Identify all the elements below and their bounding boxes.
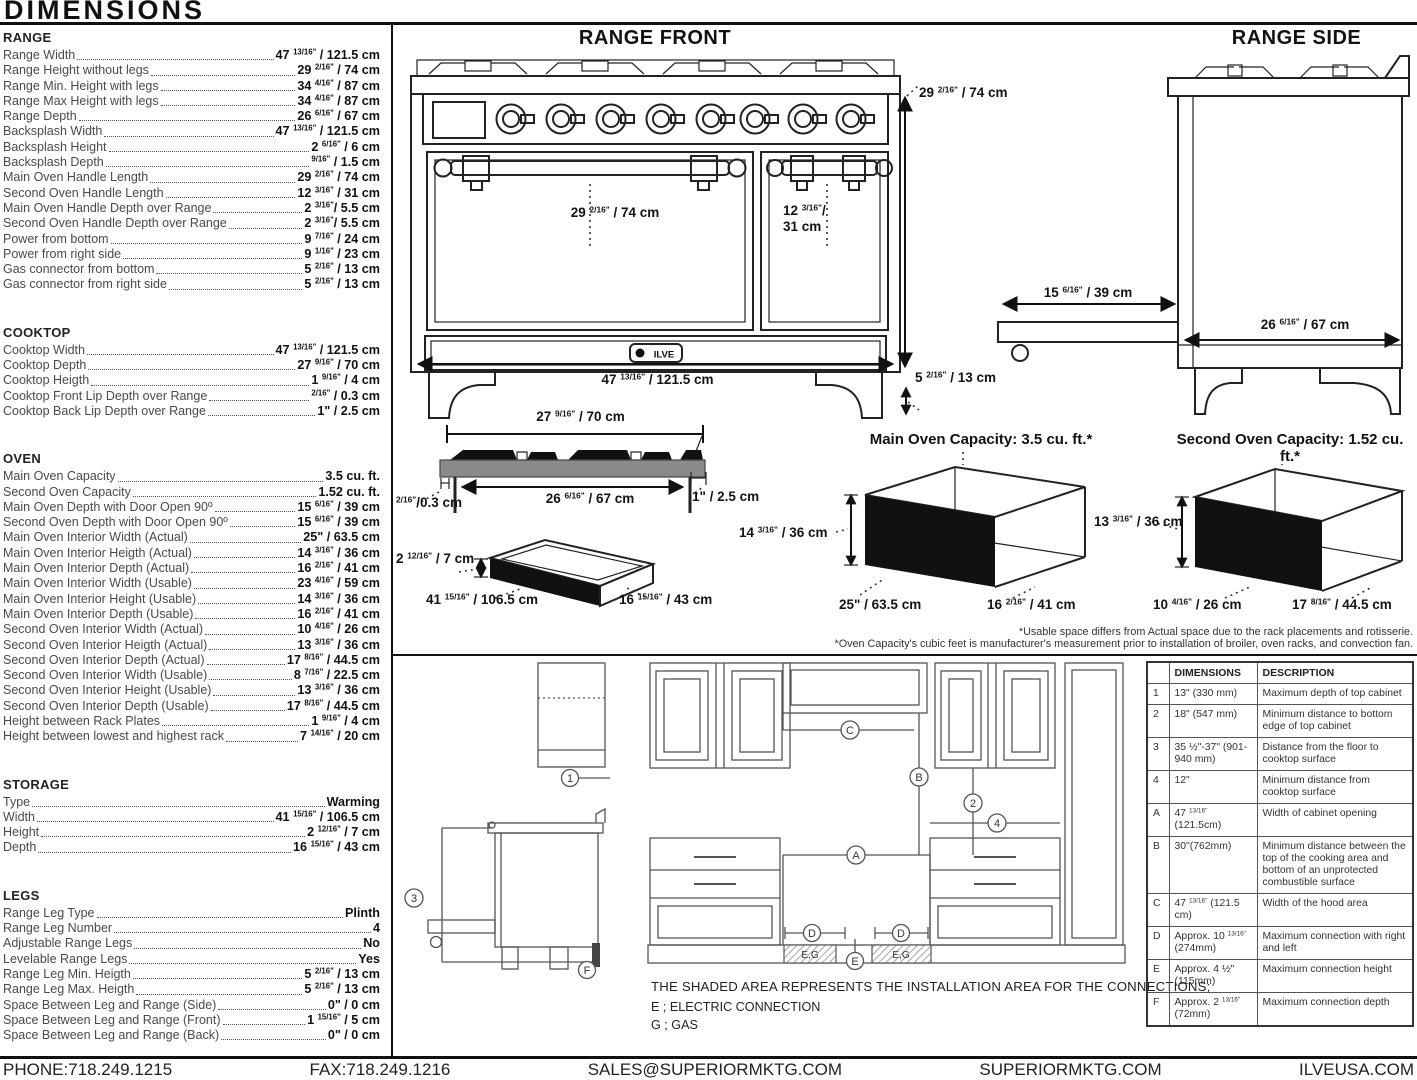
spec-row: Main Oven Depth with Door Open 90º15 6/1…: [3, 500, 380, 515]
plinth-leg: [1320, 368, 1400, 414]
spec-value: 2 12/16" / 7 cm: [307, 825, 380, 839]
second-oven-width-dim: 10 4/16" / 26 cm: [1153, 597, 1242, 612]
spec-label: Main Oven Handle Length: [3, 170, 148, 184]
spec-section-oven: OVENMain Oven Capacity3.5 cu. ft.Second …: [3, 451, 380, 744]
spec-value: 23 4/16" / 59 cm: [297, 576, 380, 590]
svg-text:A: A: [852, 850, 860, 862]
spec-value: 34 4/16" / 87 cm: [297, 79, 380, 93]
dotted-leader: [134, 948, 361, 949]
dotted-leader: [91, 385, 309, 386]
svg-text:1: 1: [567, 773, 573, 785]
spec-label: Main Oven Interior Width (Usable): [3, 576, 192, 590]
spec-value: 29 2/16" / 74 cm: [297, 170, 380, 184]
caster-wheel-icon: [431, 937, 442, 948]
spec-row: Levelable Range LegsYes: [3, 952, 380, 967]
spec-value: Warming: [327, 795, 380, 809]
spec-label: Range Leg Number: [3, 921, 112, 935]
front-main-handle-dim: 29 2/16" / 74 cm: [545, 205, 685, 220]
main-oven-door: [427, 152, 753, 330]
spec-label: Height between lowest and highest rack: [3, 729, 224, 743]
connection-label: E,G: [801, 950, 818, 961]
spec-row: Backsplash Height2 6/16" / 6 cm: [3, 140, 380, 155]
spec-value: 16 15/16" / 43 cm: [293, 840, 380, 854]
marker-e: E: [847, 953, 864, 970]
spec-row: Main Oven Interior Depth (Actual)16 2/16…: [3, 561, 380, 576]
spec-section-title: STORAGE: [3, 777, 380, 792]
spec-value: 5 2/16" / 13 cm: [304, 277, 380, 291]
spec-row: Range Leg Min. Heigth5 2/16" / 13 cm: [3, 967, 380, 982]
dotted-leader: [41, 836, 305, 837]
marker-c: C: [841, 721, 859, 739]
dotted-leader: [111, 243, 303, 244]
spec-section-cooktop: COOKTOPCooktop Width47 13/16" / 121.5 cm…: [3, 325, 380, 419]
marker-f: F: [579, 962, 596, 979]
dotted-leader: [208, 415, 315, 416]
dotted-leader: [211, 710, 285, 711]
dotted-leader: [215, 511, 296, 512]
spec-value: 15 6/16" / 39 cm: [297, 500, 380, 514]
spec-row: Main Oven Handle Depth over Range2 3/16"…: [3, 201, 380, 216]
marker-d: D: [804, 925, 821, 942]
spec-row: Range Max Height with legs34 4/16" / 87 …: [3, 94, 380, 109]
cooktop-width-dim: 27 9/16" / 70 cm: [488, 409, 673, 424]
spec-row: Cooktop Depth27 9/16" / 70 cm: [3, 358, 380, 373]
dotted-leader: [194, 557, 295, 558]
spec-row: Second Oven Interior Heigth (Actual)13 3…: [3, 638, 380, 653]
dotted-leader: [191, 572, 295, 573]
svg-text:2: 2: [970, 798, 976, 810]
dotted-leader: [161, 105, 296, 106]
spec-section-legs: LEGSRange Leg TypePlinthRange Leg Number…: [3, 888, 380, 1044]
spec-value: 1 15/16" / 5 cm: [307, 1013, 380, 1027]
oven-cavity-face: [865, 495, 995, 587]
dotted-leader: [209, 649, 295, 650]
spec-value: 2 3/16"/ 5.5 cm: [304, 201, 380, 215]
brand-logo: ILVE: [654, 350, 674, 361]
front-lip-ticks: [441, 478, 449, 489]
plinth-leg: [1195, 368, 1242, 414]
spec-row: Main Oven Capacity3.5 cu. ft.: [3, 469, 380, 484]
table-ref-cell: A: [1147, 804, 1169, 837]
table-row: FApprox. 2 13/16" (72mm)Maximum connecti…: [1147, 993, 1413, 1027]
spec-row: Second Oven Interior Depth (Actual)17 8/…: [3, 653, 380, 668]
front-second-handle-dim: 12 3/16"/ 31 cm: [783, 203, 873, 235]
spec-section-title: COOKTOP: [3, 325, 380, 340]
dotted-leader: [133, 496, 317, 497]
spec-row: Second Oven Interior Height (Usable)13 3…: [3, 683, 380, 698]
spec-value: 26 6/16" / 67 cm: [297, 109, 380, 123]
table-header-dimensions: DIMENSIONS: [1169, 662, 1257, 684]
spec-row: Second Oven Interior Width (Usable)8 7/1…: [3, 668, 380, 683]
table-ref-cell: 2: [1147, 705, 1169, 738]
spec-label: Power from right side: [3, 247, 121, 261]
spec-label: Main Oven Interior Depth (Usable): [3, 607, 193, 621]
main-oven-capacity-drawing: [835, 450, 1125, 620]
spec-label: Second Oven Interior Width (Actual): [3, 622, 203, 636]
dotted-leader: [195, 618, 295, 619]
dotted-leader: [169, 289, 302, 290]
spec-value: 0" / 0 cm: [328, 1028, 380, 1042]
tall-cabinet: [1065, 663, 1123, 945]
spec-value: 13 3/16" / 36 cm: [297, 638, 380, 652]
storage-depth-dim: 16 15/16" / 43 cm: [619, 592, 712, 607]
spec-value: 17 8/16" / 44.5 cm: [287, 699, 380, 713]
spec-row: Main Oven Interior Heigth (Actual)14 3/1…: [3, 546, 380, 561]
dotted-leader: [118, 481, 324, 482]
burners-icon: [450, 450, 703, 460]
table-description-cell: Maximum connection with right and left: [1257, 927, 1413, 960]
table-description-cell: Minimum distance from cooktop surface: [1257, 771, 1413, 804]
front-leg-height-dim: 5 2/16" / 13 cm: [915, 370, 996, 385]
spec-label: Backsplash Depth: [3, 155, 104, 169]
spec-row: Height between Rack Plates1 9/16" / 4 cm: [3, 714, 380, 729]
second-oven-door: [761, 152, 888, 330]
spec-value: 5 2/16" / 13 cm: [304, 262, 380, 276]
footer-site: SUPERIORMKTG.COM: [979, 1060, 1161, 1080]
spec-label: Second Oven Interior Height (Usable): [3, 683, 211, 697]
spec-label: Range Width: [3, 48, 75, 62]
table-ref-cell: 3: [1147, 738, 1169, 771]
side-view-title: RANGE SIDE: [1180, 27, 1413, 50]
dotted-leader: [129, 963, 356, 964]
front-height-dim: 29 2/16" / 74 cm: [919, 85, 1008, 100]
spec-row: Width41 15/16" / 106.5 cm: [3, 810, 380, 825]
spec-value: 47 13/16" / 121.5 cm: [276, 48, 380, 62]
table-row: DApprox. 10 13/16" (274mm)Maximum connec…: [1147, 927, 1413, 960]
table-row: 335 ½"-37" (901-940 mm)Distance from the…: [1147, 738, 1413, 771]
svg-text:4: 4: [994, 818, 1000, 830]
front-width-dim: 47 13/16" / 121.5 cm: [555, 372, 760, 387]
spec-value: 47 13/16" / 121.5 cm: [276, 343, 380, 357]
install-note: THE SHADED AREA REPRESENTS THE INSTALLAT…: [651, 979, 1210, 994]
spec-label: Power from bottom: [3, 232, 109, 246]
dotted-leader: [136, 994, 302, 995]
spec-row: Range Leg TypePlinth: [3, 906, 380, 921]
spec-row: Power from bottom9 7/16" / 24 cm: [3, 232, 380, 247]
spec-label: Height between Rack Plates: [3, 714, 160, 728]
spec-label: Space Between Leg and Range (Back): [3, 1028, 219, 1042]
dotted-leader: [229, 228, 303, 229]
spec-row: Second Oven Interior Depth (Usable)17 8/…: [3, 699, 380, 714]
spec-label: Second Oven Interior Width (Usable): [3, 668, 207, 682]
table-description-cell: Minimum distance between the top of the …: [1257, 837, 1413, 894]
ilve-badge: ILVE: [630, 344, 682, 362]
spec-label: Range Max Height with legs: [3, 94, 159, 108]
spec-value: 0" / 0 cm: [328, 998, 380, 1012]
spec-value: 9/16" / 1.5 cm: [311, 155, 380, 169]
footer-phone: PHONE:718.249.1215: [3, 1060, 172, 1080]
spec-row: Space Between Leg and Range (Back)0" / 0…: [3, 1028, 380, 1043]
spec-row: Height2 12/16" / 7 cm: [3, 825, 380, 840]
spec-section-title: OVEN: [3, 451, 380, 466]
spec-label: Second Oven Interior Depth (Usable): [3, 699, 209, 713]
marker-b: B: [910, 768, 928, 786]
spec-row: Range Leg Max. Heigth5 2/16" / 13 cm: [3, 982, 380, 997]
table-ref-cell: D: [1147, 927, 1169, 960]
installation-diagram: 1 3 F C B 2 4: [398, 658, 1143, 980]
dotted-leader: [37, 821, 274, 822]
spec-label: Range Height without legs: [3, 63, 149, 77]
spec-row: Main Oven Interior Depth (Usable)16 2/16…: [3, 607, 380, 622]
footer-rule: [0, 1056, 1417, 1059]
table-ref-cell: 1: [1147, 684, 1169, 705]
spec-section-storage: STORAGETypeWarmingWidth41 15/16" / 106.5…: [3, 777, 380, 856]
legend-electric: E ; ELECTRIC CONNECTION: [651, 1000, 820, 1014]
footer-site2: ILVEUSA.COM: [1299, 1060, 1414, 1080]
marker-1: 1: [562, 770, 579, 787]
spec-label: Second Oven Handle Depth over Range: [3, 216, 227, 230]
spec-row: TypeWarming: [3, 795, 380, 810]
table-description-cell: Minimum distance to bottom edge of top c…: [1257, 705, 1413, 738]
top-rule: [0, 22, 1417, 25]
spec-row: Backsplash Width47 13/16" / 121.5 cm: [3, 124, 380, 139]
svg-text:E: E: [851, 956, 858, 968]
front-view-title: RANGE FRONT: [455, 27, 855, 50]
install-dimensions-table: DIMENSIONS DESCRIPTION 113" (330 mm)Maxi…: [1146, 661, 1414, 1027]
table-dimensions-cell: 47 13/16"(121.5cm): [1169, 804, 1257, 837]
spec-row: Space Between Leg and Range (Front)1 15/…: [3, 1013, 380, 1028]
spec-section-title: RANGE: [3, 30, 380, 45]
cooktop-front-lip-dim: 2/16"/0.3 cm: [396, 495, 462, 510]
dotted-leader: [156, 273, 302, 274]
spec-row: Second Oven Capacity1.52 cu. ft.: [3, 485, 380, 500]
table-row: C47 13/16" (121.5 cm)Width of the hood a…: [1147, 894, 1413, 927]
table-dimensions-cell: 13" (330 mm): [1169, 684, 1257, 705]
spec-row: Second Oven Depth with Door Open 90º15 6…: [3, 515, 380, 530]
table-row: 412"Minimum distance from cooktop surfac…: [1147, 771, 1413, 804]
spec-row: Main Oven Interior Width (Usable)23 4/16…: [3, 576, 380, 591]
spec-value: 2/16" / 0.3 cm: [311, 389, 380, 403]
table-row: A47 13/16"(121.5cm)Width of cabinet open…: [1147, 804, 1413, 837]
dotted-leader: [209, 400, 309, 401]
table-dimensions-cell: 18" (547 mm): [1169, 705, 1257, 738]
second-oven-handle: [767, 156, 892, 190]
oven-cavity-face: [1195, 497, 1322, 591]
dotted-leader: [109, 151, 310, 152]
dotted-leader: [77, 59, 273, 60]
table-dimensions-cell: 47 13/16" (121.5 cm): [1169, 894, 1257, 927]
vertical-divider: [391, 23, 393, 1056]
dotted-leader: [209, 679, 292, 680]
table-ref-cell: F: [1147, 993, 1169, 1027]
footnote-oven-capacity: *Oven Capacity's cubic feet is manufactu…: [813, 639, 1413, 651]
spec-label: Second Oven Handle Length: [3, 186, 164, 200]
spec-row: Second Oven Handle Length12 3/16" / 31 c…: [3, 186, 380, 201]
dotted-leader: [133, 978, 303, 979]
middle-divider: [391, 654, 1417, 656]
spec-row: Second Oven Handle Depth over Range2 3/1…: [3, 216, 380, 231]
cooktop-slab: [440, 460, 705, 477]
dotted-leader: [205, 634, 295, 635]
table-header-ref: [1147, 662, 1169, 684]
spec-label: Cooktop Depth: [3, 358, 86, 372]
base-cabinet-left: [650, 838, 780, 945]
legend-gas: G ; GAS: [651, 1018, 698, 1032]
connection-label: E,G: [892, 950, 909, 961]
svg-text:3: 3: [411, 893, 417, 905]
table-dimensions-cell: Approx. 4 ½" (115mm): [1169, 960, 1257, 993]
spec-row: Cooktop Width47 13/16" / 121.5 cm: [3, 343, 380, 358]
backsplash: [1385, 56, 1409, 78]
spec-label: Backsplash Width: [3, 124, 102, 138]
spec-value: 47 13/16" / 121.5 cm: [276, 124, 380, 138]
table-description-cell: Width of cabinet opening: [1257, 804, 1413, 837]
table-description-cell: Maximum depth of top cabinet: [1257, 684, 1413, 705]
table-ref-cell: E: [1147, 960, 1169, 993]
spec-row: Range Width47 13/16" / 121.5 cm: [3, 48, 380, 63]
spec-row: Backsplash Depth9/16" / 1.5 cm: [3, 155, 380, 170]
spec-value: No: [363, 936, 380, 950]
cooktop-inner-width-dim: 26 6/16" / 67 cm: [505, 491, 675, 506]
spec-label: Second Oven Interior Heigth (Actual): [3, 638, 207, 652]
table-row: 218" (547 mm)Minimum distance to bottom …: [1147, 705, 1413, 738]
dotted-leader: [221, 1039, 326, 1040]
spec-row: Range Height without legs29 2/16" / 74 c…: [3, 63, 380, 78]
spec-label: Range Leg Type: [3, 906, 95, 920]
spec-label: Space Between Leg and Range (Side): [3, 998, 216, 1012]
spec-value: 3.5 cu. ft.: [325, 469, 380, 483]
table-description-cell: Maximum connection depth: [1257, 993, 1413, 1027]
footnotes: *Usable space differs from Actual space …: [813, 627, 1413, 651]
spec-value: 10 4/16" / 26 cm: [297, 622, 380, 636]
spec-row: Range Min. Height with legs34 4/16" / 87…: [3, 79, 380, 94]
spec-label: Backsplash Height: [3, 140, 107, 154]
dotted-leader: [79, 120, 296, 121]
spec-label: Levelable Range Legs: [3, 952, 127, 966]
dotted-leader: [114, 932, 371, 933]
spec-label: Second Oven Capacity: [3, 485, 131, 499]
spec-row: Cooktop Back Lip Depth over Range1" / 2.…: [3, 404, 380, 419]
spec-row: Gas connector from right side5 2/16" / 1…: [3, 277, 380, 292]
dotted-leader: [161, 90, 296, 91]
dotted-leader: [32, 806, 324, 807]
open-door-sketch: [428, 920, 495, 933]
second-oven-depth-dim: 17 8/16" / 44.5 cm: [1292, 597, 1392, 612]
spec-value: 12 3/16" / 31 cm: [297, 186, 380, 200]
display-panel: [433, 102, 485, 138]
svg-text:F: F: [584, 965, 591, 977]
spec-sheet-page: DIMENSIONS RANGERange Width47 13/16" / 1…: [0, 0, 1417, 1080]
spec-row: Range Depth26 6/16" / 67 cm: [3, 109, 380, 124]
dotted-leader: [162, 725, 309, 726]
spec-label: Second Oven Interior Depth (Actual): [3, 653, 205, 667]
spec-value: 25" / 63.5 cm: [303, 530, 380, 544]
dotted-leader: [166, 197, 296, 198]
marker-a: A: [847, 846, 865, 864]
dotted-leader: [213, 212, 302, 213]
dotted-leader: [87, 354, 274, 355]
dotted-leader: [198, 603, 295, 604]
marker-4: 4: [988, 814, 1006, 832]
dotted-leader: [123, 258, 302, 259]
cooktop-back-lip-dim: 1" / 2.5 cm: [692, 489, 759, 504]
dotted-leader: [223, 1024, 306, 1025]
spec-value: 27 9/16" / 70 cm: [297, 358, 380, 372]
spec-value: 9 1/16" / 23 cm: [304, 247, 380, 261]
marker-2: 2: [964, 794, 982, 812]
spec-value: 1" / 2.5 cm: [317, 404, 380, 418]
table-dimensions-cell: Approx. 2 13/16" (72mm): [1169, 993, 1257, 1027]
spec-row: Space Between Leg and Range (Side)0" / 0…: [3, 998, 380, 1013]
dotted-leader: [218, 1009, 325, 1010]
spec-section-range: RANGERange Width47 13/16" / 121.5 cmRang…: [3, 30, 380, 293]
spec-row: Main Oven Handle Length29 2/16" / 74 cm: [3, 170, 380, 185]
spec-value: 13 3/16" / 36 cm: [297, 683, 380, 697]
range-side-drawing: [990, 52, 1417, 424]
svg-text:C: C: [846, 725, 854, 737]
burner-grates-icon: [429, 61, 878, 74]
spec-row: Gas connector from bottom5 2/16" / 13 cm: [3, 262, 380, 277]
dotted-leader: [213, 695, 295, 696]
dotted-leader: [88, 369, 295, 370]
dotted-leader: [207, 664, 285, 665]
spec-row: Second Oven Interior Width (Actual)10 4/…: [3, 622, 380, 637]
spec-label: Cooktop Heigth: [3, 373, 89, 387]
table-description-cell: Maximum connection height: [1257, 960, 1413, 993]
spec-value: 4: [373, 921, 380, 935]
svg-text:D: D: [897, 928, 905, 940]
spec-row: Main Oven Interior Height (Usable)14 3/1…: [3, 592, 380, 607]
spec-value: 34 4/16" / 87 cm: [297, 94, 380, 108]
spec-label: Depth: [3, 840, 36, 854]
side-door-open-dim: 15 6/16" / 39 cm: [1008, 285, 1168, 300]
storage-drawer-drawing: [395, 528, 815, 628]
footer-email: SALES@SUPERIORMKTG.COM: [588, 1060, 842, 1080]
spec-value: 7 14/16" / 20 cm: [300, 729, 380, 743]
open-oven-door: [998, 322, 1178, 342]
spec-value: 9 7/16" / 24 cm: [304, 232, 380, 246]
main-oven-depth-dim: 16 2/16" / 41 cm: [987, 597, 1076, 612]
table-ref-cell: B: [1147, 837, 1169, 894]
spec-label: Main Oven Interior Heigth (Actual): [3, 546, 192, 560]
base-cabinet-right: [930, 838, 1060, 945]
spec-label: Main Oven Handle Depth over Range: [3, 201, 211, 215]
dotted-leader: [151, 75, 295, 76]
storage-height-dim: 2 12/16" / 7 cm: [396, 551, 474, 566]
footer-fax: FAX:718.249.1216: [310, 1060, 451, 1080]
main-oven-width-dim: 25" / 63.5 cm: [839, 597, 921, 612]
spec-label: Cooktop Width: [3, 343, 85, 357]
spec-value: Yes: [358, 952, 380, 966]
spec-row: Range Leg Number4: [3, 921, 380, 936]
table-ref-cell: C: [1147, 894, 1169, 927]
table-header-row: DIMENSIONS DESCRIPTION: [1147, 662, 1413, 684]
wall-cabinet: [538, 663, 605, 767]
spec-label: Second Oven Depth with Door Open 90º: [3, 515, 228, 529]
spec-row: Cooktop Front Lip Depth over Range2/16" …: [3, 389, 380, 404]
spec-label: Main Oven Interior Height (Usable): [3, 592, 196, 606]
spec-value: 1 9/16" / 4 cm: [311, 373, 380, 387]
table-row: EApprox. 4 ½" (115mm)Maximum connection …: [1147, 960, 1413, 993]
spec-value: Plinth: [345, 906, 380, 920]
spec-value: 16 2/16" / 41 cm: [297, 561, 380, 575]
dotted-leader: [190, 542, 302, 543]
spec-row: Cooktop Heigth1 9/16" / 4 cm: [3, 373, 380, 388]
spec-value: 14 3/16" / 36 cm: [297, 546, 380, 560]
dotted-leader: [104, 136, 273, 137]
table-row: B30"(762mm)Minimum distance between the …: [1147, 837, 1413, 894]
caster-wheel-icon: [1012, 345, 1028, 361]
range-front-drawing: ILVE: [403, 52, 923, 424]
spec-label: Main Oven Interior Depth (Actual): [3, 561, 189, 575]
spec-label: Range Depth: [3, 109, 77, 123]
main-oven-height-dim: 14 3/16" / 36 cm: [739, 525, 828, 540]
dotted-leader: [230, 526, 296, 527]
spec-value: 2 3/16"/ 5.5 cm: [304, 216, 380, 230]
spec-value: 14 3/16" / 36 cm: [297, 592, 380, 606]
table-description-cell: Distance from the floor to cooktop surfa…: [1257, 738, 1413, 771]
spec-label: Adjustable Range Legs: [3, 936, 132, 950]
